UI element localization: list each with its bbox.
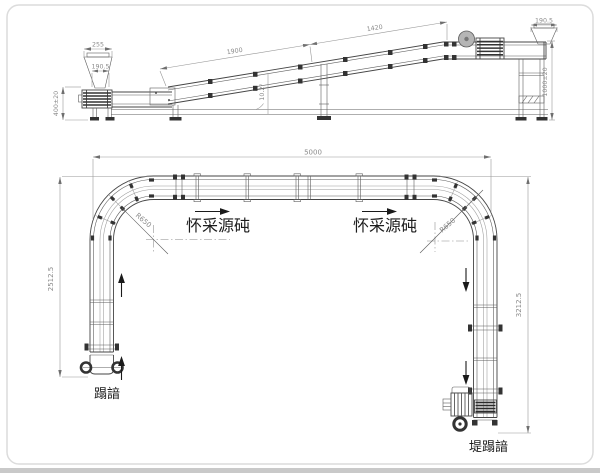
- dim-2512-5-text: 2512.5: [47, 267, 55, 292]
- discharge-end-label: 堤蹋諳: [469, 440, 508, 455]
- infeed-end-label: 蹋諳: [94, 387, 120, 402]
- dim-1000-text: 1000±20: [542, 67, 549, 96]
- dim-400-text: 400±20: [53, 91, 60, 116]
- screenshot-bottom-edge: [0, 468, 600, 473]
- watermark-text-left: 怀采源砘: [186, 216, 250, 235]
- dim-190-5-left-text: 190.5: [91, 64, 109, 71]
- dim-255-text: 255: [92, 42, 104, 49]
- drawing-canvas: 255 190.5 400±20: [0, 0, 600, 473]
- dim-3212-5-text: 3212.5: [515, 293, 523, 318]
- cad-drawing: 255 190.5 400±20: [0, 0, 600, 473]
- watermark-text-right: 怀采源砘: [353, 216, 417, 235]
- discharge-gearmotor-icon: [459, 31, 475, 47]
- infeed-drive-drum-icon: [79, 90, 113, 108]
- dim-angle-text: 10.2°: [258, 83, 266, 100]
- dim-190-5-right-text: 190.5: [535, 18, 553, 25]
- dim-5000-text: 5000: [304, 149, 322, 157]
